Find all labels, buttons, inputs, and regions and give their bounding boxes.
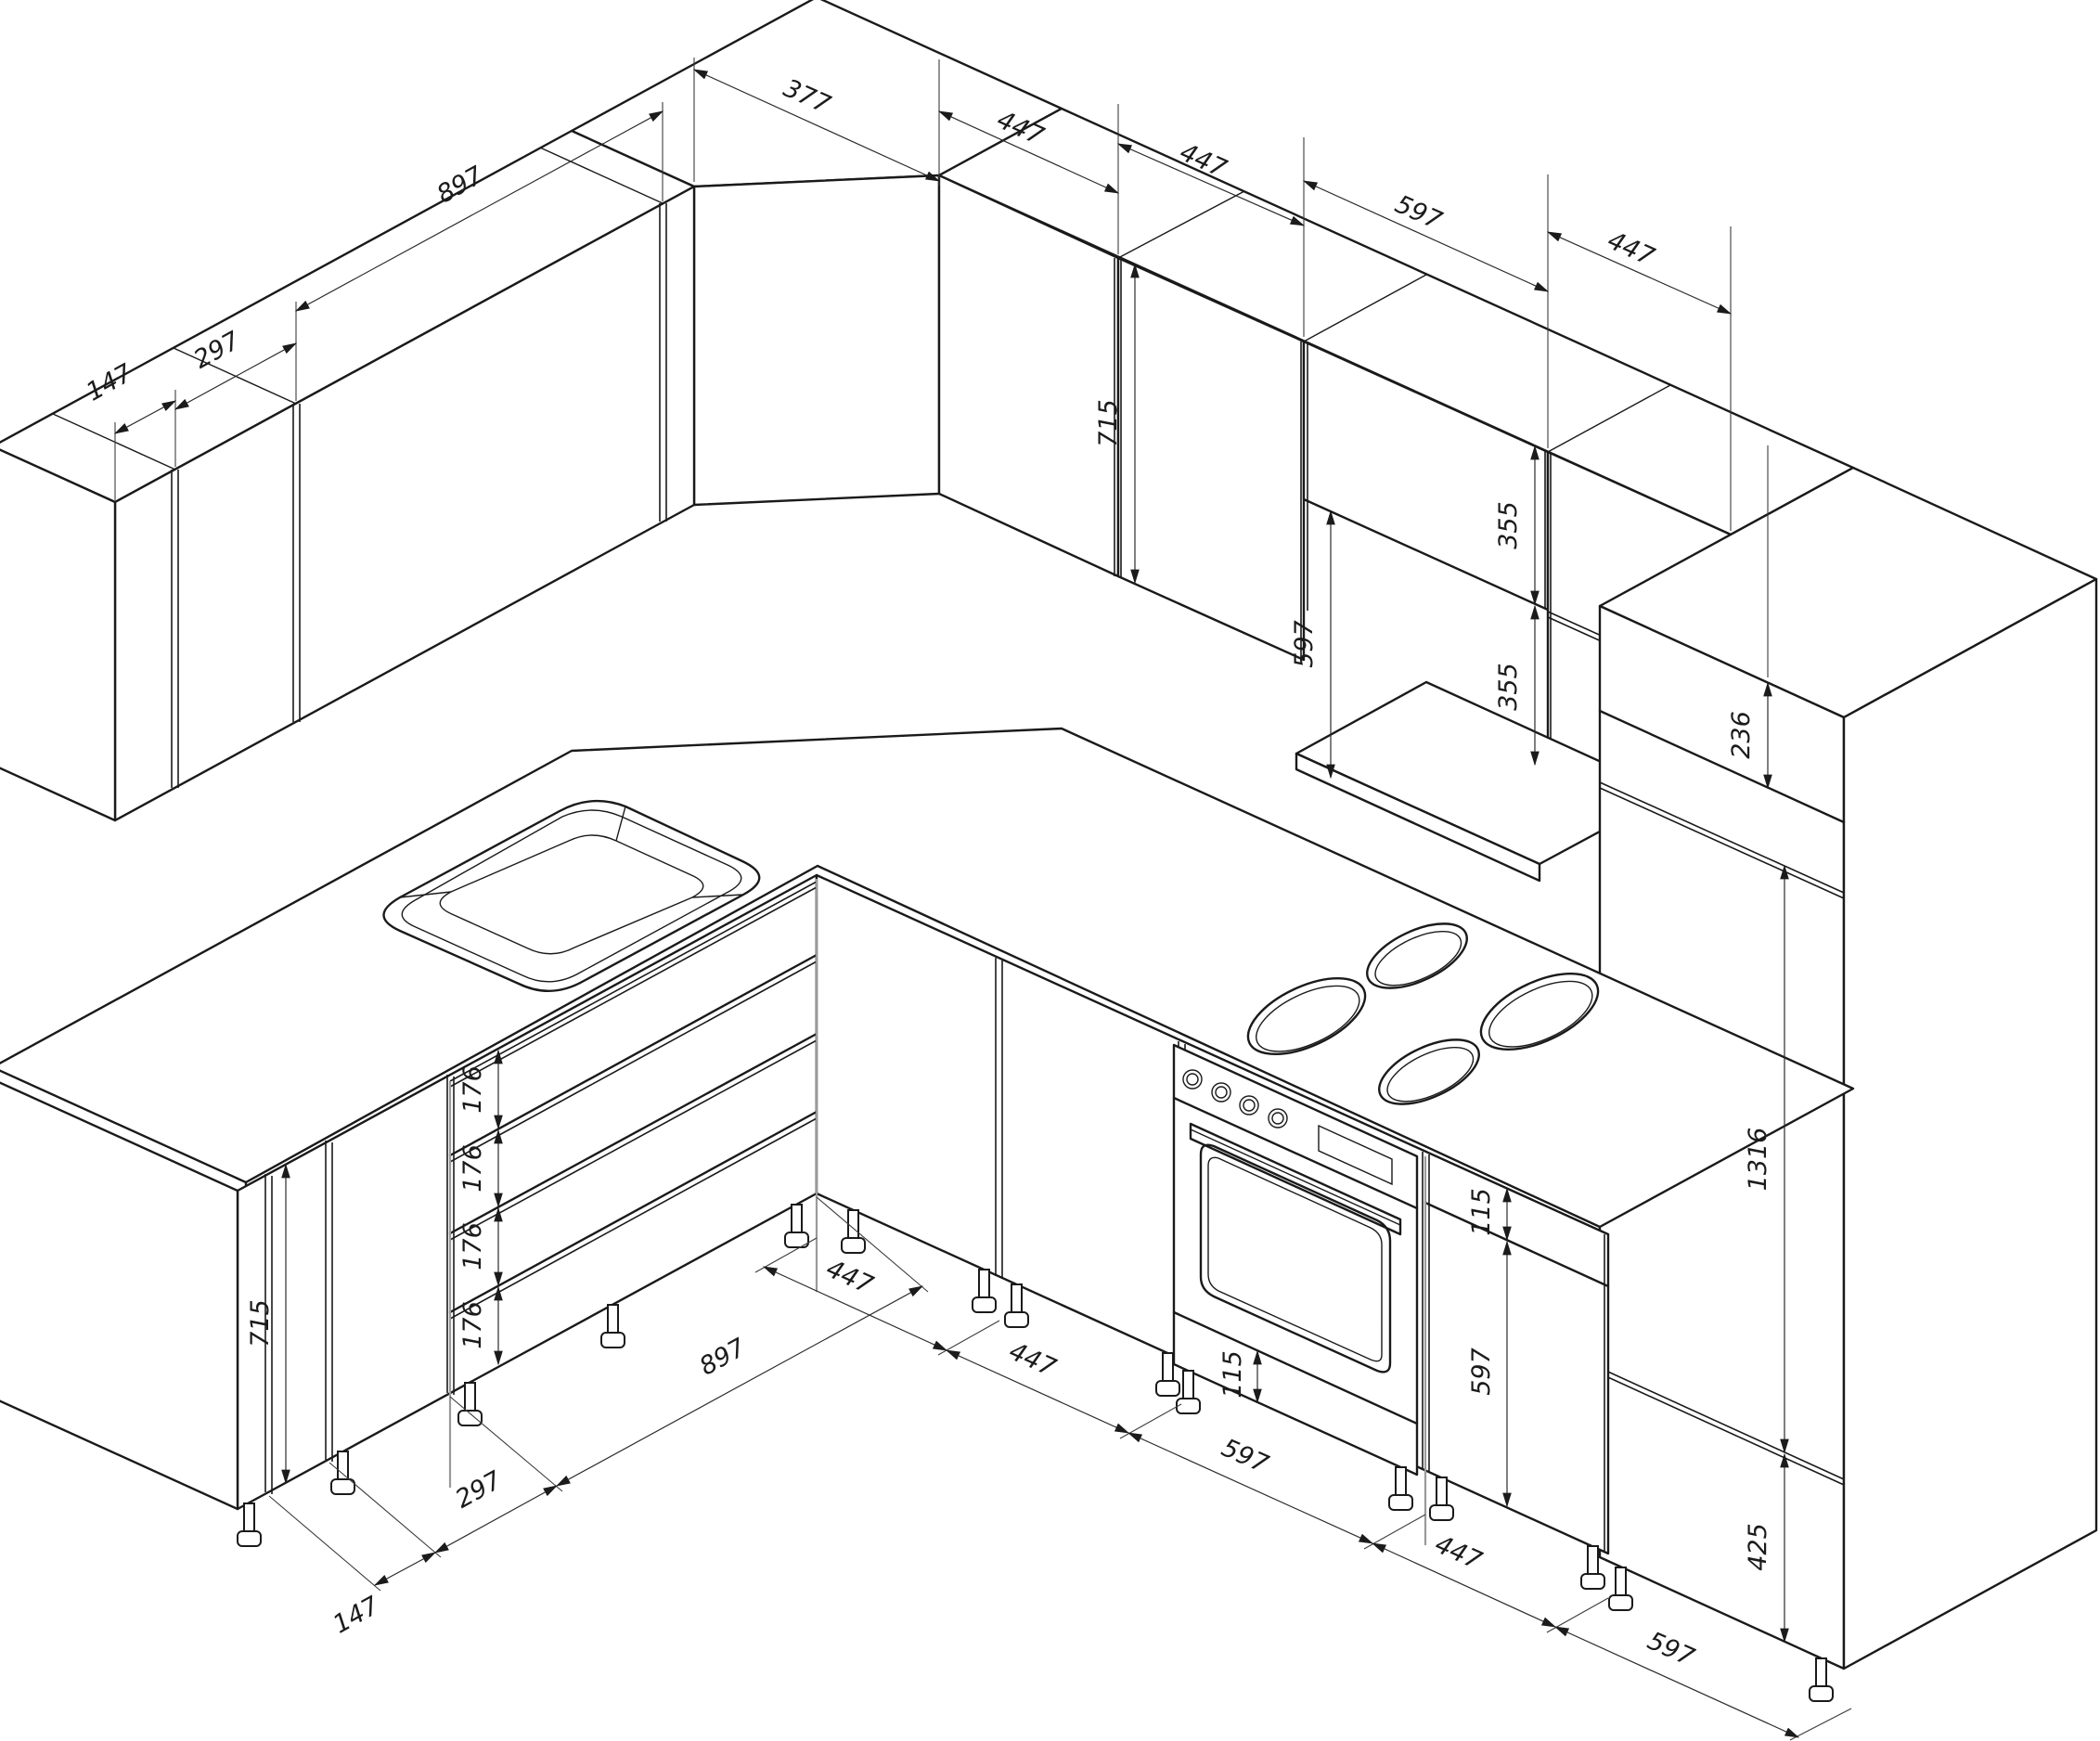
dim-355-bottom: 355 bbox=[1494, 663, 1523, 711]
dim-425: 425 bbox=[1744, 1523, 1772, 1571]
leg bbox=[458, 1383, 482, 1425]
dim-597-base-oven: 597 bbox=[1217, 1434, 1273, 1479]
dim-176-4: 176 bbox=[458, 1301, 487, 1349]
leg bbox=[1609, 1567, 1632, 1610]
leg bbox=[842, 1210, 865, 1253]
dim-447-base-a: 447 bbox=[822, 1255, 878, 1300]
dim-355-top: 355 bbox=[1494, 501, 1523, 549]
kitchen-isometric-drawing: 377 447 447 597 447 897 297 147 715 597 … bbox=[0, 0, 2100, 1741]
tall-cabinet-side bbox=[1844, 579, 2096, 1669]
corner-upper-chamfer-door bbox=[694, 175, 939, 505]
dim-597-top: 597 bbox=[1391, 190, 1447, 236]
dim-236: 236 bbox=[1727, 711, 1756, 759]
dim-115-strip: 115 bbox=[1467, 1188, 1496, 1236]
dim-597-door: 597 bbox=[1467, 1348, 1496, 1396]
dim-715-base: 715 bbox=[246, 1299, 275, 1348]
dim-115-oven: 115 bbox=[1218, 1350, 1247, 1399]
dim-1316: 1316 bbox=[1744, 1128, 1772, 1192]
dim-176-2: 176 bbox=[458, 1144, 487, 1193]
dim-447-c: 447 bbox=[1604, 226, 1659, 272]
leg bbox=[1810, 1658, 1833, 1701]
dim-176-3: 176 bbox=[458, 1222, 487, 1270]
dim-897-bottom: 897 bbox=[695, 1334, 751, 1382]
dim-176-1: 176 bbox=[458, 1065, 487, 1114]
leg bbox=[1005, 1284, 1028, 1327]
dim-447-base-c: 447 bbox=[1431, 1530, 1487, 1576]
dim-147-bottom: 147 bbox=[329, 1592, 384, 1640]
dim-597-base-tall: 597 bbox=[1643, 1627, 1699, 1672]
leg bbox=[973, 1270, 996, 1312]
leg bbox=[785, 1205, 808, 1247]
dim-597-hood-gap: 597 bbox=[1290, 620, 1319, 668]
leg bbox=[1430, 1477, 1453, 1520]
leg bbox=[331, 1451, 354, 1494]
dim-447-base-b: 447 bbox=[1005, 1337, 1061, 1383]
upper-cabinets bbox=[0, 0, 1853, 854]
drawing-canvas: 377 447 447 597 447 897 297 147 715 597 … bbox=[0, 0, 2100, 1741]
left-upper-end-panel bbox=[0, 446, 115, 820]
dim-297-bottom: 297 bbox=[451, 1466, 507, 1515]
dim-715-upper: 715 bbox=[1094, 399, 1123, 447]
leg bbox=[601, 1305, 625, 1348]
leg bbox=[238, 1503, 261, 1546]
leg bbox=[1389, 1467, 1412, 1510]
